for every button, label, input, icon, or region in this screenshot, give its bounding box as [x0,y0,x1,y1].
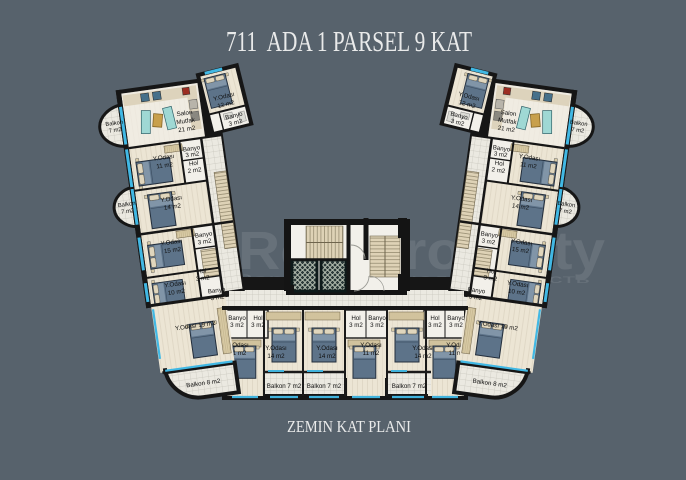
svg-text:Balkon 7 m2: Balkon 7 m2 [307,383,342,390]
svg-text:Y.Odası: Y.Odası [316,345,338,352]
svg-text:Balkon 7 m2: Balkon 7 m2 [267,383,302,390]
svg-text:3 m2: 3 m2 [349,322,363,329]
svg-text:Y.Odası: Y.Odası [360,342,382,349]
svg-text:3 m2: 3 m2 [230,322,244,329]
svg-text:Balkon 7 m2: Balkon 7 m2 [392,383,427,390]
svg-text:711 ADA 1 PARSEL 9 KAT: 711 ADA 1 PARSEL 9 KAT [226,27,472,58]
svg-text:14 m2: 14 m2 [267,353,285,360]
svg-text:14 m2: 14 m2 [318,353,336,360]
svg-text:Banyo: Banyo [447,315,465,322]
svg-text:3 m2: 3 m2 [251,322,265,329]
svg-text:3 m2: 3 m2 [370,322,384,329]
svg-text:Hol: Hol [351,315,360,322]
svg-text:3 m2: 3 m2 [428,322,442,329]
svg-text:Banyo: Banyo [368,315,386,322]
svg-text:Banyo: Banyo [228,315,246,322]
svg-text:11 m2: 11 m2 [363,350,380,357]
svg-text:14 m2: 14 m2 [414,353,432,360]
svg-text:Hol: Hol [253,315,262,322]
svg-text:ZEMIN KAT PLANI: ZEMIN KAT PLANI [287,417,411,436]
svg-text:Hol: Hol [430,315,439,322]
svg-text:3 m2: 3 m2 [449,322,463,329]
svg-text:Y.Odası: Y.Odası [265,345,287,352]
svg-text:Y.Odası: Y.Odası [412,345,434,352]
